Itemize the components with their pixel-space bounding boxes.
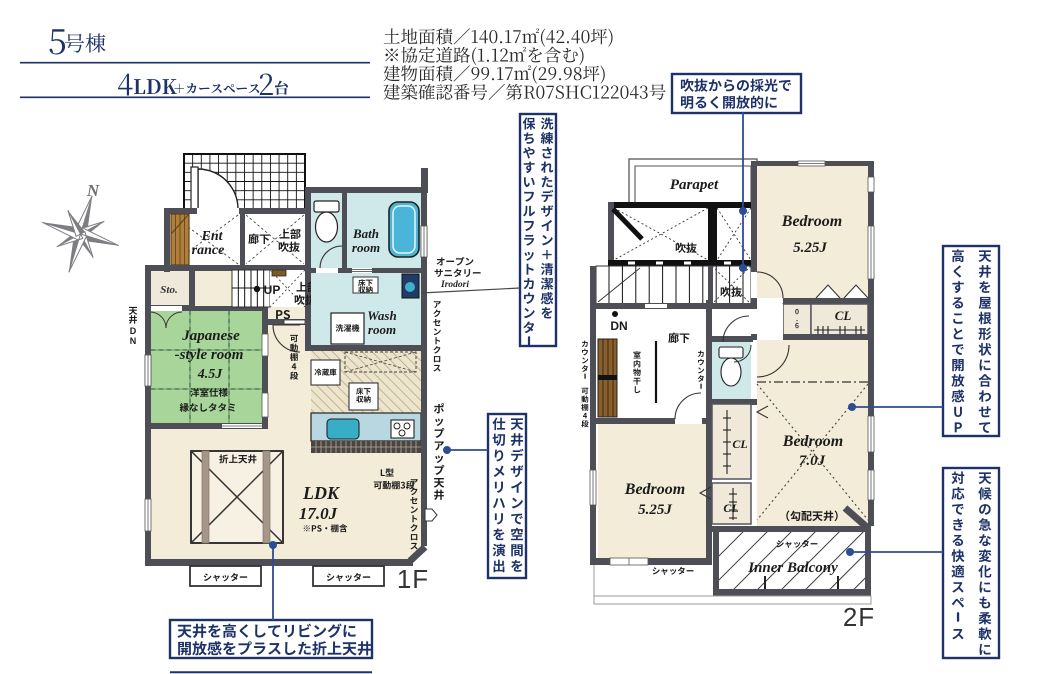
- svg-text:CL: CL: [732, 437, 747, 451]
- svg-text:Inner Balcony: Inner Balcony: [747, 560, 838, 576]
- svg-text:Bedroom: Bedroom: [624, 481, 685, 498]
- svg-text:1F: 1F: [397, 564, 429, 594]
- svg-text:N: N: [86, 181, 100, 200]
- svg-text:Parapet: Parapet: [670, 177, 719, 193]
- svg-text:D: D: [130, 326, 137, 336]
- svg-text:CL: CL: [835, 308, 852, 323]
- svg-text:Irodori: Irodori: [440, 280, 469, 290]
- svg-text:UP: UP: [264, 283, 281, 297]
- svg-text:DN: DN: [610, 319, 627, 333]
- svg-text:5.25J: 5.25J: [793, 240, 827, 256]
- svg-text:CL: CL: [723, 501, 738, 515]
- svg-text:Wash: Wash: [367, 308, 396, 323]
- svg-text:Bath: Bath: [352, 226, 379, 241]
- svg-text:2F: 2F: [843, 602, 875, 632]
- svg-text:17.0J: 17.0J: [299, 504, 338, 523]
- svg-text:rance: rance: [192, 243, 225, 258]
- svg-text:Bedroom: Bedroom: [782, 433, 843, 450]
- svg-text:LDK: LDK: [302, 483, 341, 503]
- svg-text:4.5J: 4.5J: [197, 367, 224, 382]
- svg-text:N: N: [130, 336, 137, 346]
- svg-text:Sto.: Sto.: [160, 284, 177, 296]
- svg-text:7.0J: 7.0J: [799, 453, 826, 469]
- svg-text:Bedroom: Bedroom: [781, 213, 842, 230]
- svg-text:5.25J: 5.25J: [638, 502, 672, 518]
- svg-text:room: room: [368, 322, 396, 337]
- svg-text:Japanese: Japanese: [181, 328, 240, 344]
- svg-text:-style room: -style room: [175, 347, 244, 363]
- svg-text:room: room: [352, 240, 380, 255]
- svg-text:Ent: Ent: [200, 229, 223, 244]
